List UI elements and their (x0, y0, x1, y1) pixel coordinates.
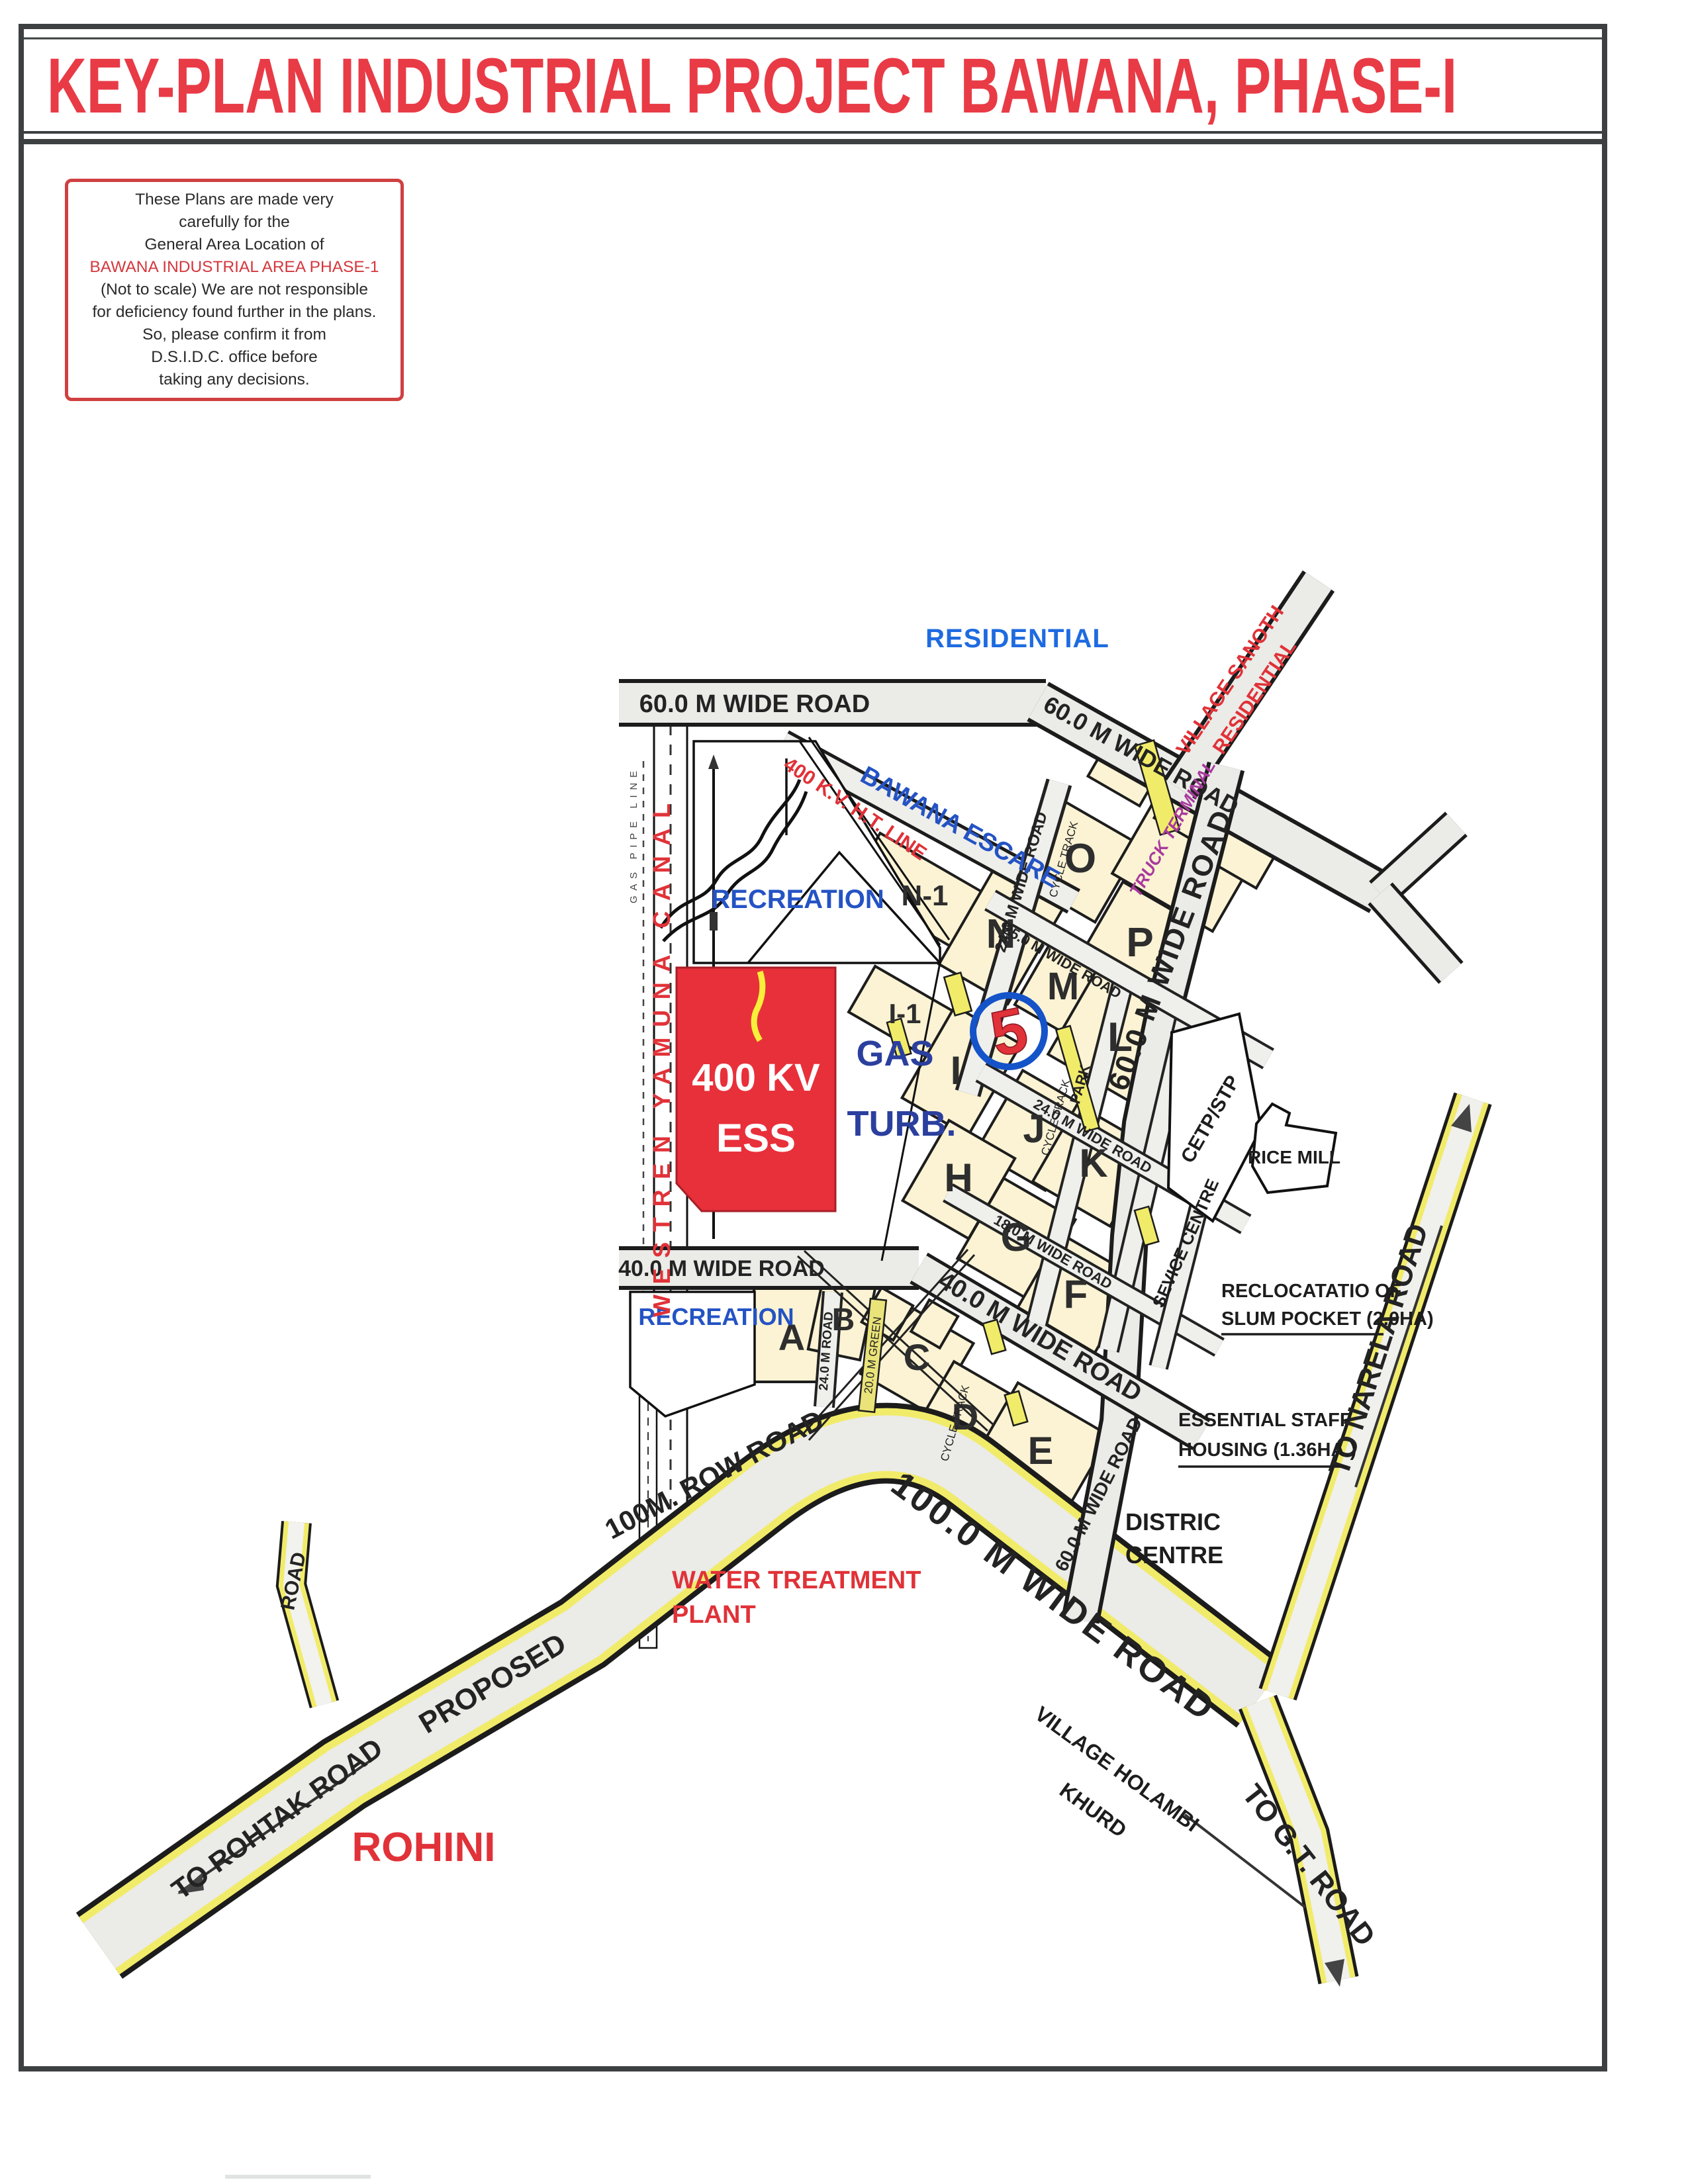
disclaimer-line: for deficiency found further in the plan… (92, 301, 376, 324)
scan-smudge (225, 2175, 371, 2179)
sector-label-N1: N-1 (902, 880, 949, 912)
page-title: KEY-PLAN INDUSTRIAL PROJECT BAWANA, PHAS… (47, 42, 1457, 130)
disclaimer-highlight-line: BAWANA INDUSTRIAL AREA PHASE-1 (89, 256, 379, 279)
gas-turb-label-1: GAS (856, 1034, 933, 1073)
wtp-label-1: WATER TREATMENT (672, 1567, 921, 1594)
sector-label-I: I (951, 1048, 962, 1093)
staff-label-2: HOUSING (1.36HA.) (1178, 1439, 1356, 1461)
district-label-1: DISTRIC (1125, 1508, 1221, 1535)
scanned-key-plan-page: KEY-PLAN INDUSTRIAL PROJECT BAWANA, PHAS… (0, 0, 1688, 2184)
disclaimer-box: These Plans are made very carefully for … (65, 179, 404, 401)
road-fork-down (1380, 893, 1451, 973)
rohini-label: ROHINI (352, 1825, 496, 1870)
disclaimer-line: carefully for the (179, 211, 290, 234)
ess-label-1: 400 KV (692, 1056, 820, 1099)
gas-pipe-label: GAS PIPE LINE (628, 771, 639, 903)
sector-label-E: E (1028, 1430, 1054, 1473)
disclaimer-line: So, please confirm it from (142, 324, 326, 346)
rice-mill-label: RICE MILL (1248, 1147, 1340, 1167)
road-label-to-rohtak: TO ROHTAK ROAD (166, 1732, 389, 1905)
disclaimer-line: These Plans are made very (135, 189, 334, 211)
sector-label-I1: I-1 (888, 998, 921, 1029)
disclaimer-line: D.S.I.D.C. office before (151, 346, 317, 369)
gas-turb-label-2: TURB. (847, 1104, 957, 1144)
staff-label-1: ESSENTIAL STAFF (1178, 1410, 1352, 1431)
sector-label-C: C (904, 1336, 930, 1378)
relocation-label-1: RECLOCATATIO OF (1221, 1281, 1401, 1302)
disclaimer-line: (Not to scale) We are not responsible (101, 279, 368, 301)
holambi-label-2: KHURD (1055, 1778, 1131, 1842)
relocation-label-2: SLUM POCKET (2.0HA) (1221, 1308, 1434, 1330)
recreation-upper-label: RECREATION (711, 885, 884, 914)
residential-label: RESIDENTIAL (925, 624, 1109, 653)
road-label-60m-top: 60.0 M WIDE ROAD (639, 690, 870, 718)
district-label-2: CENTRE (1125, 1541, 1223, 1569)
disclaimer-line: taking any decisions. (159, 369, 309, 391)
sector-label-H: H (944, 1156, 972, 1200)
wtp-label-2: PLANT (672, 1601, 756, 1629)
pole-insulator (710, 912, 718, 931)
ess-label-2: ESS (716, 1116, 796, 1160)
road-fork-up (1380, 824, 1456, 893)
disclaimer-line: General Area Location of (144, 234, 324, 256)
